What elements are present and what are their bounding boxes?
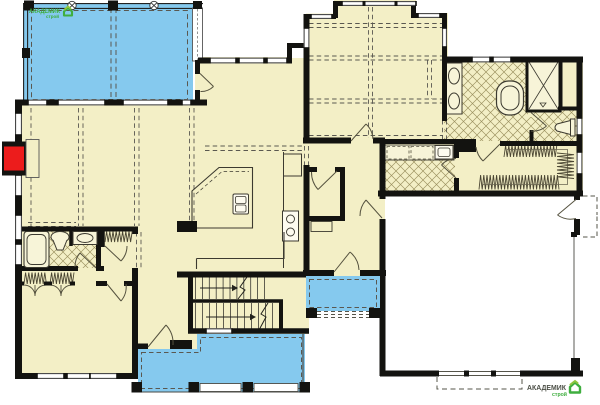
svg-text:строй: строй: [46, 14, 59, 19]
svg-text:строй: строй: [552, 391, 567, 398]
svg-text:АКАДЕМИК: АКАДЕМИК: [527, 384, 567, 392]
